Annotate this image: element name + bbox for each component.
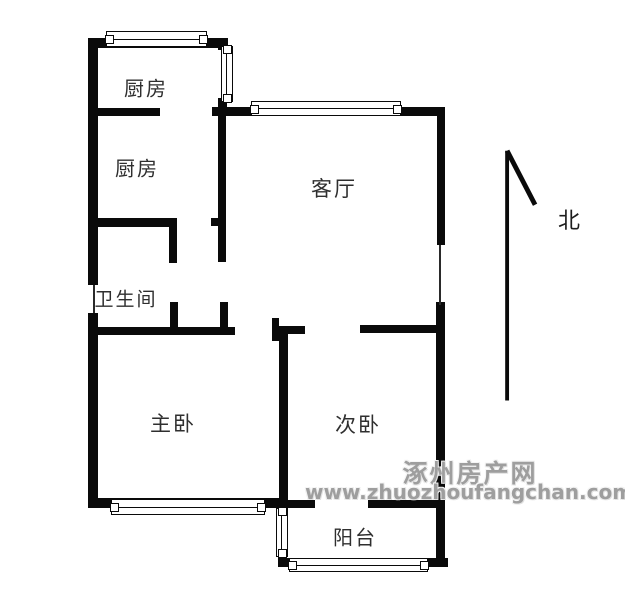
window-symbol (251, 101, 401, 116)
wall-segment (88, 327, 235, 335)
wall-segment (220, 302, 228, 328)
floorplan-canvas: 厨房厨房客厅卫生间主卧次卧阳台 北 涿州房产网 www.zhuozhoufang… (0, 0, 625, 600)
wall-segment (436, 302, 445, 567)
window-end-cap (278, 507, 287, 516)
wall-segment (272, 318, 279, 341)
window-symbol (289, 558, 428, 572)
window-pane-line (226, 47, 227, 101)
room-label-second-bedroom: 次卧 (335, 409, 381, 439)
wall-segment (360, 325, 445, 333)
window-end-cap (278, 549, 287, 558)
window-symbol (106, 31, 207, 47)
watermark-site-url: www.zhuozhoufangchan.com (305, 480, 625, 504)
window-pane-line (252, 108, 400, 109)
room-label-living-room: 客厅 (311, 173, 357, 203)
wall-segment (211, 218, 218, 226)
window-pane-line (107, 39, 206, 40)
room-label-balcony: 阳台 (333, 522, 377, 551)
window-end-cap (110, 503, 119, 512)
wall-segment (279, 334, 288, 500)
window-symbol (111, 499, 265, 515)
window-end-cap (223, 94, 232, 103)
wall-segment (92, 218, 177, 227)
north-label: 北 (558, 203, 580, 235)
window-pane-line (290, 565, 427, 566)
wall-segment (437, 108, 445, 245)
window-end-cap (105, 35, 114, 44)
wall-segment (88, 38, 98, 285)
room-label-bathroom: 卫生间 (94, 285, 157, 312)
wall-segment (169, 227, 177, 263)
wall-segment (88, 313, 98, 508)
wall-segment (170, 302, 178, 328)
window-end-cap (223, 45, 232, 54)
room-label-kitchen-lower: 厨房 (115, 153, 159, 182)
wall-opening-line (439, 245, 441, 305)
window-end-cap (393, 105, 402, 114)
window-end-cap (250, 105, 259, 114)
window-end-cap (288, 561, 297, 570)
room-label-kitchen-upper: 厨房 (124, 73, 168, 102)
window-end-cap (199, 35, 208, 44)
wall-segment (92, 108, 160, 116)
room-label-master-bedroom: 主卧 (150, 408, 196, 438)
wall-segment (218, 114, 226, 262)
window-pane-line (112, 507, 264, 508)
window-end-cap (420, 561, 429, 570)
window-end-cap (257, 503, 266, 512)
north-arrow-icon (480, 145, 540, 415)
